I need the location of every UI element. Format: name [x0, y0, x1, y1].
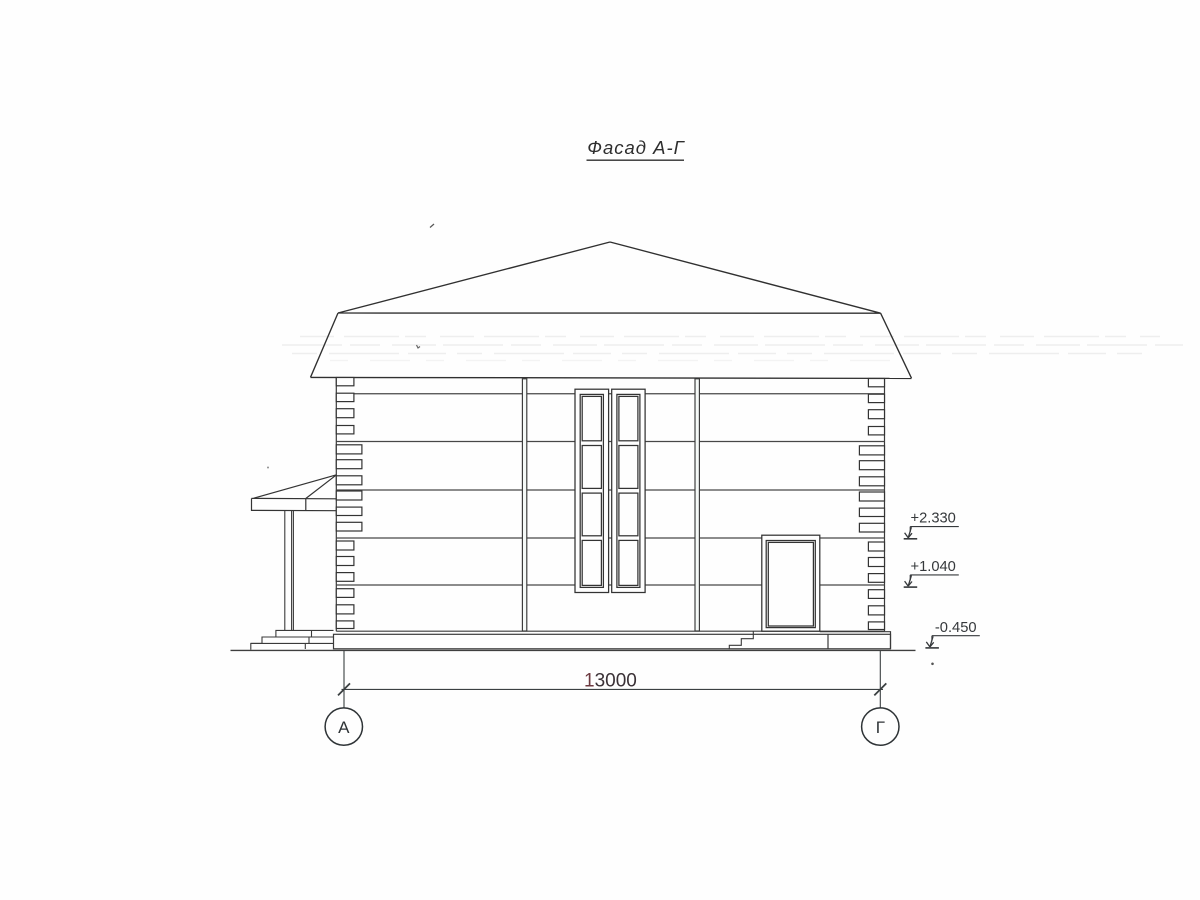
svg-text:Фасад А-Г: Фасад А-Г: [587, 137, 685, 158]
svg-text:13000: 13000: [584, 671, 637, 692]
svg-text:Г: Г: [876, 718, 885, 737]
svg-text:А: А: [338, 718, 350, 737]
svg-text:-0.450: -0.450: [935, 620, 977, 636]
svg-text:+1.040: +1.040: [911, 559, 956, 575]
svg-text:+2.330: +2.330: [911, 510, 956, 526]
